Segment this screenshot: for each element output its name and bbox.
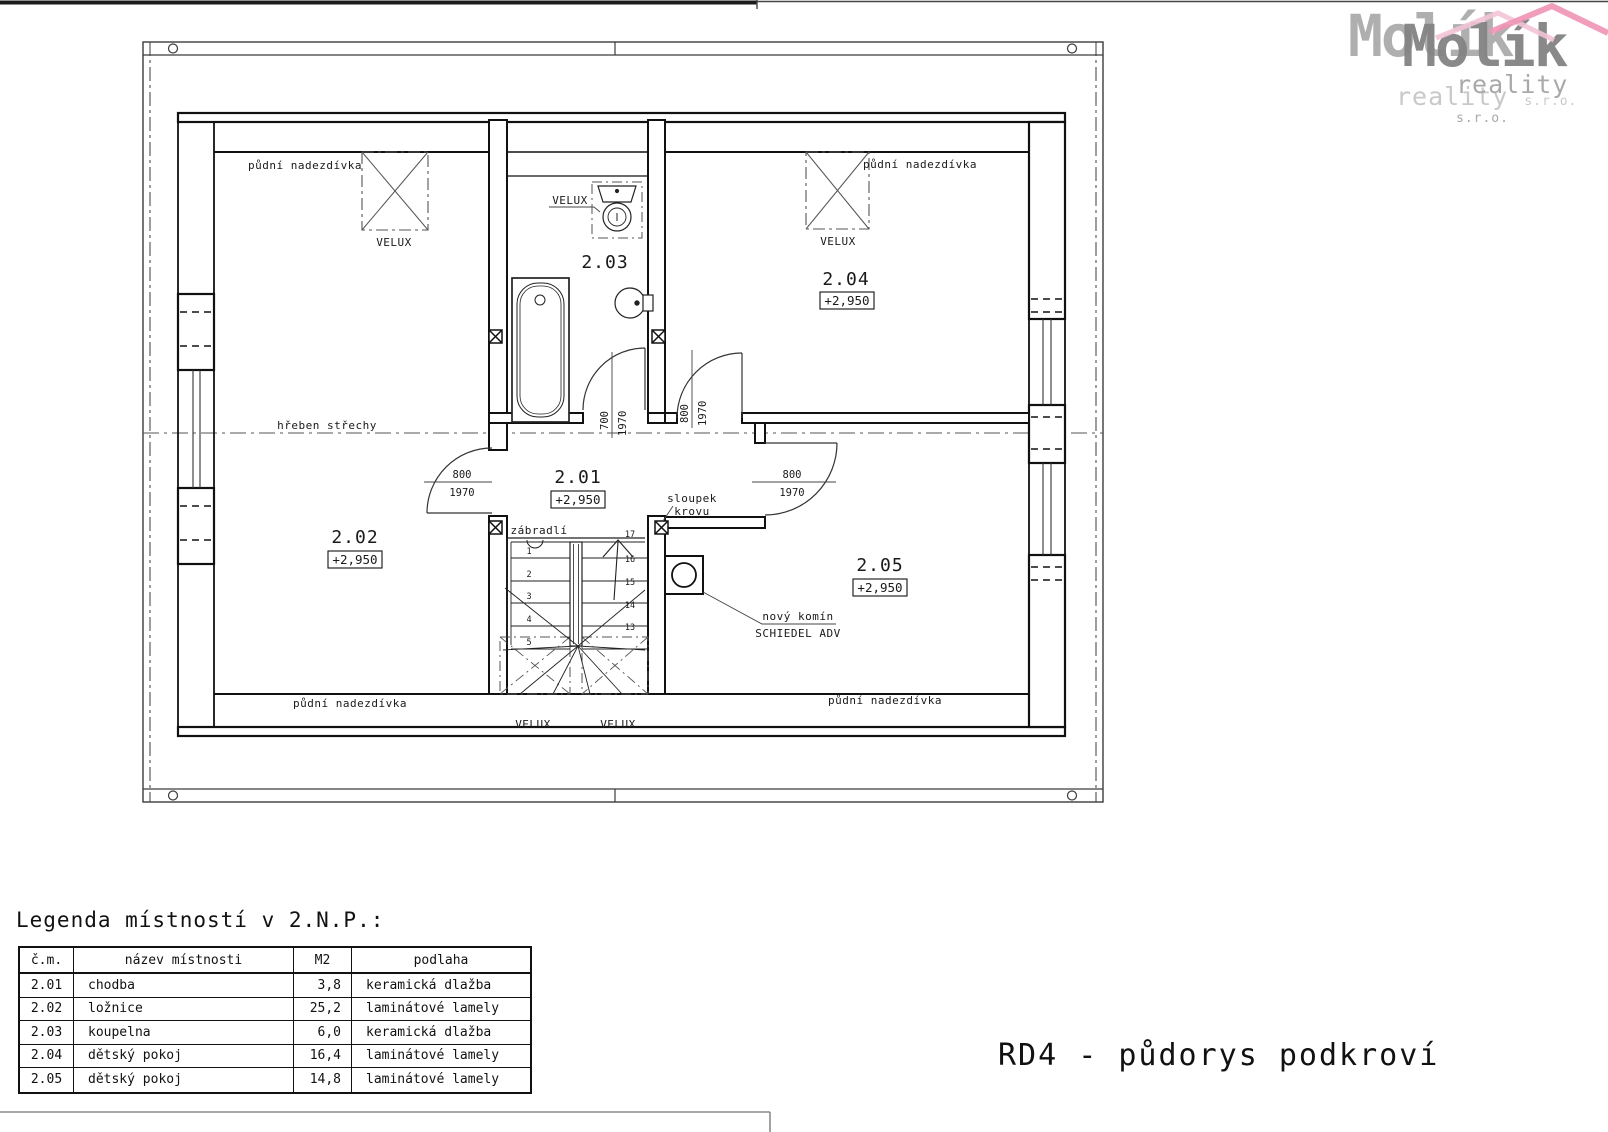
drawing-sheet: půdní nadezdívka půdní nadezdívka půdní … [0,0,1608,1132]
pilaster-right-mid [1029,405,1065,463]
svg-text:16: 16 [625,555,635,565]
gable-windows [193,319,1051,555]
truss-post-icon [652,330,665,343]
svg-text:14: 14 [625,601,635,611]
legend-cell: laminátové lamely [352,998,530,1022]
legend-cell: 14,8 [294,1068,352,1092]
ridge-label: hřeben střechy [277,419,377,432]
legend-cell: laminátové lamely [352,1045,530,1069]
wall-right-lower [1029,555,1065,727]
wall-stair-right [648,516,665,694]
realty-logo: Molík Molík reality s.r.o. reality s.r.o… [1340,0,1608,112]
dim-door-204-w: 800 [679,404,691,423]
wall-stair-left [489,516,507,694]
frame-mark-top-right [1068,44,1077,53]
knee-wall-label-bottom-right: půdní nadezdívka [828,694,942,707]
dim-door-right-h: 1970 [779,487,804,499]
skylight-204 [806,152,869,229]
truss-post-icon [655,521,668,534]
frame-mark-bottom-right [1068,791,1077,800]
pilaster-left-upper [178,294,214,370]
legend-header-floor: podlaha [352,948,530,974]
wall-right-upper [1029,122,1065,319]
pilaster-left-lower [178,488,214,564]
wall-bath-left [489,120,507,450]
legend-title: Legenda místností v 2.N.P.: [16,908,384,932]
legend-cell: dětský pokoj [74,1068,294,1092]
room-number-205: 2.05 [856,555,903,576]
level-202: +2,950 [332,552,377,567]
truss-post-icon [489,521,502,534]
dim-door-bath-h: 1970 [617,411,629,436]
svg-text:13: 13 [625,623,635,633]
legend-header-name: název místnosti [74,948,294,974]
legend-cell: 2.01 [20,974,74,998]
legend-cell: 2.05 [20,1068,74,1092]
svg-text:2: 2 [526,570,531,580]
svg-text:1: 1 [526,547,531,557]
room-number-201: 2.01 [554,467,601,488]
legend-cell: keramická dlažba [352,974,530,998]
legend-table: č.m. název místnosti M2 podlaha 2.01 cho… [18,946,532,1094]
chimney-label-2: SCHIEDEL ADV [755,627,840,640]
legend-cell: 6,0 [294,1021,352,1045]
svg-text:15: 15 [625,578,635,588]
window-right-lower [1043,463,1051,555]
wall-divider-204-205-a [665,413,677,423]
knee-wall-label-bottom-left: půdní nadezdívka [293,697,407,710]
window-left [193,370,200,488]
legend-cell: koupelna [74,1021,294,1045]
window-right-upper [1043,319,1051,405]
level-204: +2,950 [824,293,869,308]
legend-cell: 2.04 [20,1045,74,1069]
stair-stringer [570,542,582,646]
bathtub [512,278,569,422]
knee-wall-label-top-left: půdní nadezdívka [248,159,362,172]
velux-label-stair-right: VELUX [600,718,636,731]
knee-wall-label-top-right: půdní nadezdívka [863,158,977,171]
frame-mark-top-left [169,44,178,53]
railing-label: zábradlí [511,524,568,537]
logo-subtitle: reality s.r.o. [1456,70,1608,128]
drawing-title: RD4 - půdorys podkroví [998,1038,1439,1073]
skylight-stair-right [582,637,648,694]
velux-label-stair-left: VELUX [515,718,551,731]
truss-post-icon [489,330,502,343]
legend-cell: 25,2 [294,998,352,1022]
wall-divider-204-205-b [742,413,1029,423]
legend-header-m2: M2 [294,948,352,974]
frame-mark-bottom-left [169,791,178,800]
level-201: +2,950 [555,492,600,507]
svg-text:4: 4 [526,615,531,625]
velux-label-202: VELUX [376,236,412,249]
truss-post-label-1: sloupek [667,492,717,505]
room-number-202: 2.02 [331,527,378,548]
plan-texts: půdní nadezdívka půdní nadezdívka půdní … [248,158,977,731]
legend-cell: dětský pokoj [74,1045,294,1069]
legend-cell: keramická dlažba [352,1021,530,1045]
door-bathroom [583,348,645,410]
dim-door-204-h: 1970 [697,401,709,426]
legend-cell: 2.03 [20,1021,74,1045]
truss-post-label-2: krovu [674,505,710,518]
wall-top [178,113,1065,122]
stair-direction-arrow [603,540,633,600]
legend-cell: 2.02 [20,998,74,1022]
skylight-202 [362,152,428,230]
legend-cell: 16,4 [294,1045,352,1069]
dim-door-left-w: 800 [453,469,472,481]
wall-hall-bottom [665,517,765,528]
toilet [598,186,636,231]
legend-cell: chodba [74,974,294,998]
legend-cell: ložnice [74,998,294,1022]
svg-text:5: 5 [526,638,531,648]
wall-bath-right [648,120,665,413]
velux-label-bathroom: VELUX [552,194,588,207]
room-number-203: 2.03 [581,252,628,273]
bathroom-fixtures [512,186,653,422]
legend-cell: 3,8 [294,974,352,998]
dim-door-bath-w: 700 [599,411,611,430]
legend-cell: laminátové lamely [352,1068,530,1092]
level-205: +2,950 [857,580,902,595]
room-number-204: 2.04 [822,269,869,290]
wall-stub-205 [755,423,765,443]
chimney-label-1: nový komín [762,610,833,623]
svg-text:17: 17 [625,530,635,540]
legend-header-cm: č.m. [20,948,74,974]
skylight-stair-left [500,637,570,694]
dim-door-left-h: 1970 [449,487,474,499]
svg-text:3: 3 [526,592,531,602]
chimney [665,556,703,594]
stair-steps-left [511,558,570,649]
velux-label-204: VELUX [820,235,856,248]
dim-door-right-w: 800 [783,469,802,481]
stair-steps-right [582,558,648,649]
